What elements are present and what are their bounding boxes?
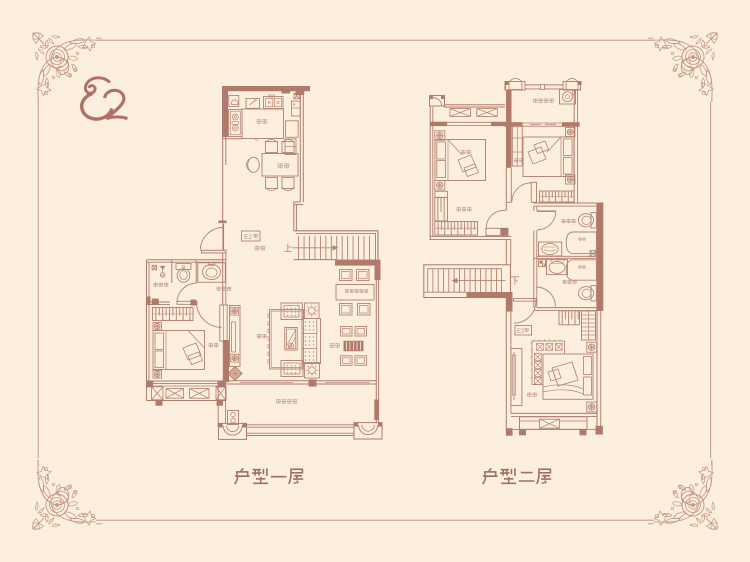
svg-text:E2: E2	[517, 329, 525, 335]
svg-text:E2: E2	[244, 234, 252, 241]
